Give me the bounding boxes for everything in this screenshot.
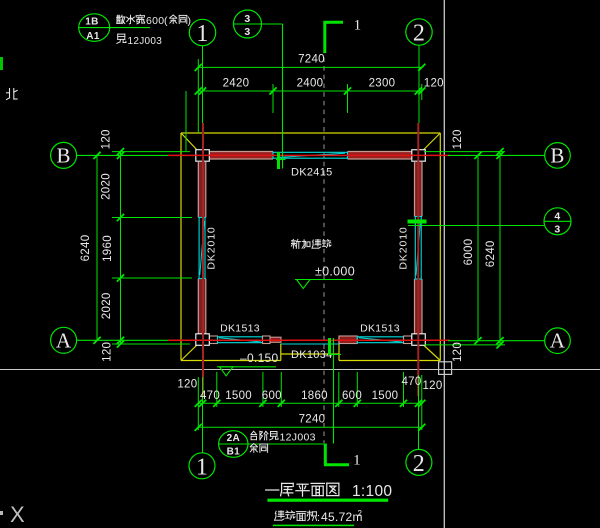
svg-text:120: 120	[177, 379, 197, 391]
svg-text:6000: 6000	[463, 239, 475, 266]
svg-text:A: A	[550, 329, 566, 353]
svg-text:3: 3	[244, 26, 250, 38]
svg-text:2300: 2300	[369, 78, 396, 90]
svg-text:470: 470	[200, 390, 220, 402]
svg-text:120: 120	[102, 342, 114, 362]
svg-text::: :	[317, 512, 320, 524]
svg-text:120: 120	[422, 380, 442, 392]
svg-text:12J003: 12J003	[280, 432, 316, 444]
svg-text:–0.150: –0.150	[240, 351, 279, 365]
svg-text:7240: 7240	[298, 54, 325, 66]
svg-text:1860: 1860	[301, 390, 328, 402]
svg-text:±0.000: ±0.000	[315, 265, 355, 279]
svg-text:120: 120	[424, 78, 444, 90]
svg-text:600: 600	[342, 390, 362, 402]
svg-text:1: 1	[196, 21, 208, 47]
svg-text:DK2010: DK2010	[206, 226, 218, 269]
svg-text:12J003: 12J003	[128, 36, 163, 47]
svg-text:1500: 1500	[225, 390, 252, 402]
svg-text:(: (	[164, 15, 168, 27]
svg-text:A1: A1	[86, 31, 100, 42]
svg-text:6240: 6240	[485, 240, 497, 267]
svg-text:): )	[188, 15, 192, 27]
svg-text:B1: B1	[227, 447, 241, 458]
svg-text:120: 120	[452, 342, 464, 362]
svg-text:DK1513: DK1513	[220, 323, 260, 335]
svg-text:B: B	[56, 143, 70, 167]
svg-text:1960: 1960	[102, 235, 114, 262]
svg-text:120: 120	[452, 129, 464, 149]
svg-text:DK1034: DK1034	[291, 349, 333, 361]
svg-text:DK1513: DK1513	[360, 323, 400, 335]
svg-text:2: 2	[358, 509, 363, 518]
svg-text:1500: 1500	[372, 390, 399, 402]
svg-text:2400: 2400	[297, 78, 324, 90]
svg-text:1B: 1B	[85, 17, 98, 28]
svg-text:2020: 2020	[101, 173, 113, 200]
svg-text:600: 600	[262, 390, 282, 402]
svg-text:470: 470	[401, 376, 421, 388]
svg-text:600: 600	[146, 15, 164, 27]
svg-text:2020: 2020	[101, 292, 113, 319]
svg-text:2420: 2420	[223, 78, 250, 90]
svg-text:2A: 2A	[227, 433, 240, 444]
svg-text:A: A	[56, 328, 72, 352]
svg-text:7240: 7240	[299, 414, 326, 426]
svg-text:B: B	[550, 143, 564, 167]
svg-text:DK2415: DK2415	[291, 167, 333, 179]
svg-text:2: 2	[413, 21, 425, 47]
svg-text:DK2010: DK2010	[398, 226, 410, 269]
svg-text:120: 120	[101, 129, 113, 149]
svg-text:1: 1	[353, 453, 361, 469]
svg-text:4: 4	[554, 210, 560, 222]
svg-text:1: 1	[354, 18, 362, 34]
svg-text:X: X	[10, 502, 25, 527]
svg-text:1: 1	[196, 454, 208, 480]
svg-text:3: 3	[554, 223, 560, 235]
svg-text:2: 2	[413, 451, 425, 477]
svg-text:1:100: 1:100	[352, 483, 392, 500]
svg-text:3: 3	[244, 13, 250, 25]
svg-text:6240: 6240	[80, 235, 92, 262]
